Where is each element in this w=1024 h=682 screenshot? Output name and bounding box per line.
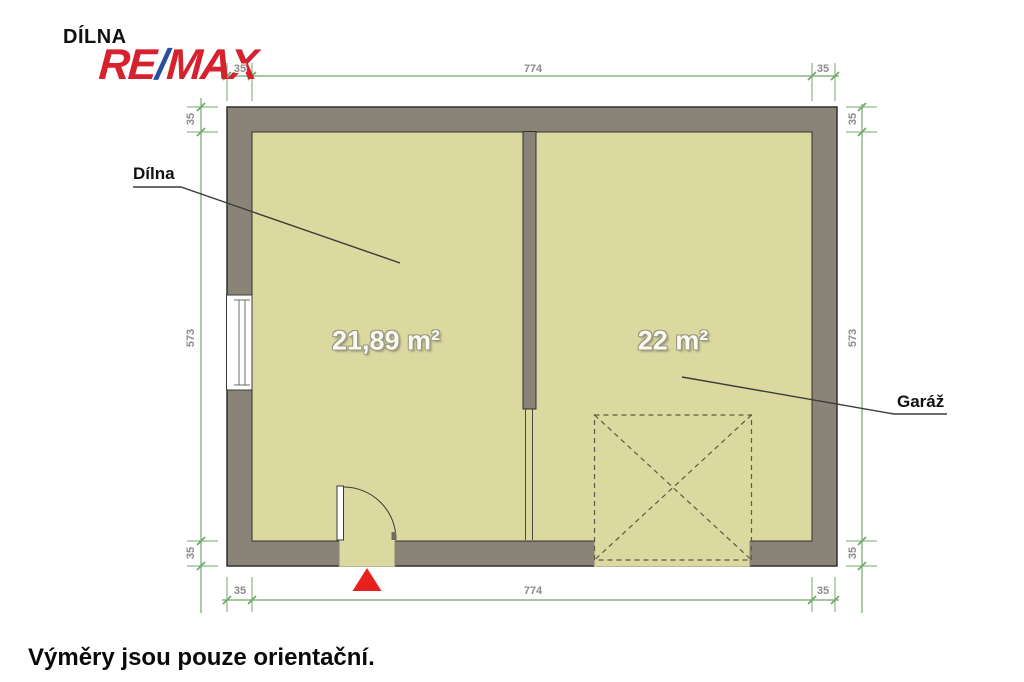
entrance-arrow-icon bbox=[353, 568, 382, 591]
dim-bottom-width: 774 bbox=[524, 585, 542, 597]
disclaimer-text: Výměry jsou pouze orientační. bbox=[28, 644, 375, 672]
dim-top-width: 774 bbox=[524, 63, 542, 75]
floorplan-page: DÍLNA RE/MAX 35 774 35 35 774 35 35 573 … bbox=[0, 0, 1024, 682]
room-area-garaz: 22 m² bbox=[638, 326, 709, 357]
dim-right-height: 573 bbox=[847, 329, 859, 347]
dim-bottom-right-wall: 35 bbox=[817, 585, 829, 597]
remax-logo-re: RE bbox=[97, 41, 156, 89]
dim-right-bottom-wall: 35 bbox=[847, 547, 859, 559]
dim-left-top-wall: 35 bbox=[185, 113, 197, 125]
room-name-garaz: Garáž bbox=[897, 392, 944, 412]
dim-bottom-left-wall: 35 bbox=[234, 585, 246, 597]
dim-top-right-wall: 35 bbox=[817, 63, 829, 75]
dim-top-left-wall: 35 bbox=[234, 63, 246, 75]
dim-right-top-wall: 35 bbox=[847, 113, 859, 125]
building-walls bbox=[227, 107, 837, 566]
dim-left-bottom-wall: 35 bbox=[185, 547, 197, 559]
room-name-dilna: Dílna bbox=[133, 164, 175, 184]
window-symbol bbox=[227, 295, 253, 390]
dim-left-height: 573 bbox=[185, 329, 197, 347]
floorplan-drawing bbox=[0, 0, 1024, 682]
room-area-dilna: 21,89 m² bbox=[332, 326, 440, 357]
